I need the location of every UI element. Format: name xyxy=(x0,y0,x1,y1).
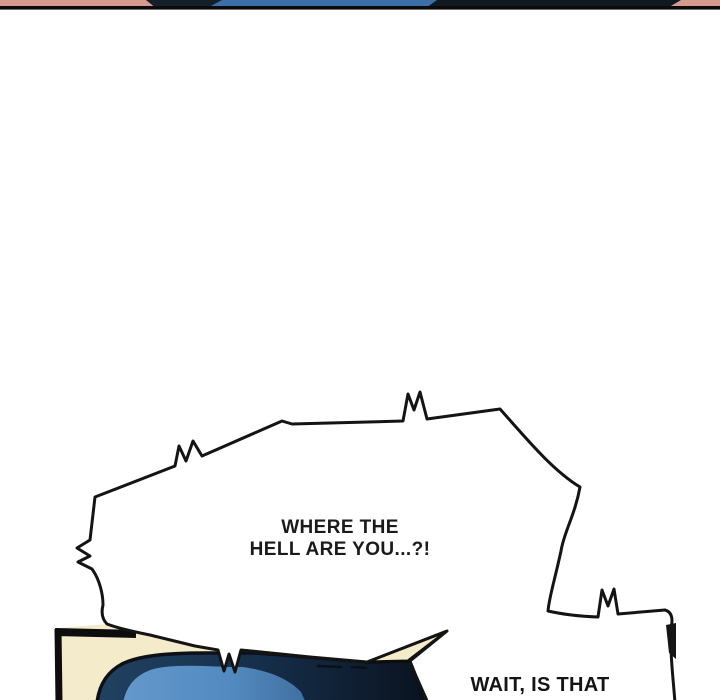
previous-panel-edge xyxy=(0,0,720,10)
comic-artwork xyxy=(0,0,720,700)
previous-panel-blue-band xyxy=(208,0,438,7)
comic-page: WHERE THE HELL ARE YOU...?! WAIT, IS THA… xyxy=(0,0,720,700)
speech-bubble-line2: HELL ARE YOU...?! xyxy=(190,539,490,561)
caption-text: WAIT, IS THAT xyxy=(440,672,640,698)
previous-panel-navy-wedge-right xyxy=(428,0,681,7)
panel-border-top xyxy=(55,632,136,634)
previous-panel-navy-wedge-left xyxy=(146,0,222,7)
speech-bubble-line1: WHERE THE xyxy=(190,517,490,539)
previous-panel-bottom-rule xyxy=(0,6,720,10)
speech-bubble-text: WHERE THE HELL ARE YOU...?! xyxy=(190,517,490,561)
panel-border-left xyxy=(58,629,59,700)
